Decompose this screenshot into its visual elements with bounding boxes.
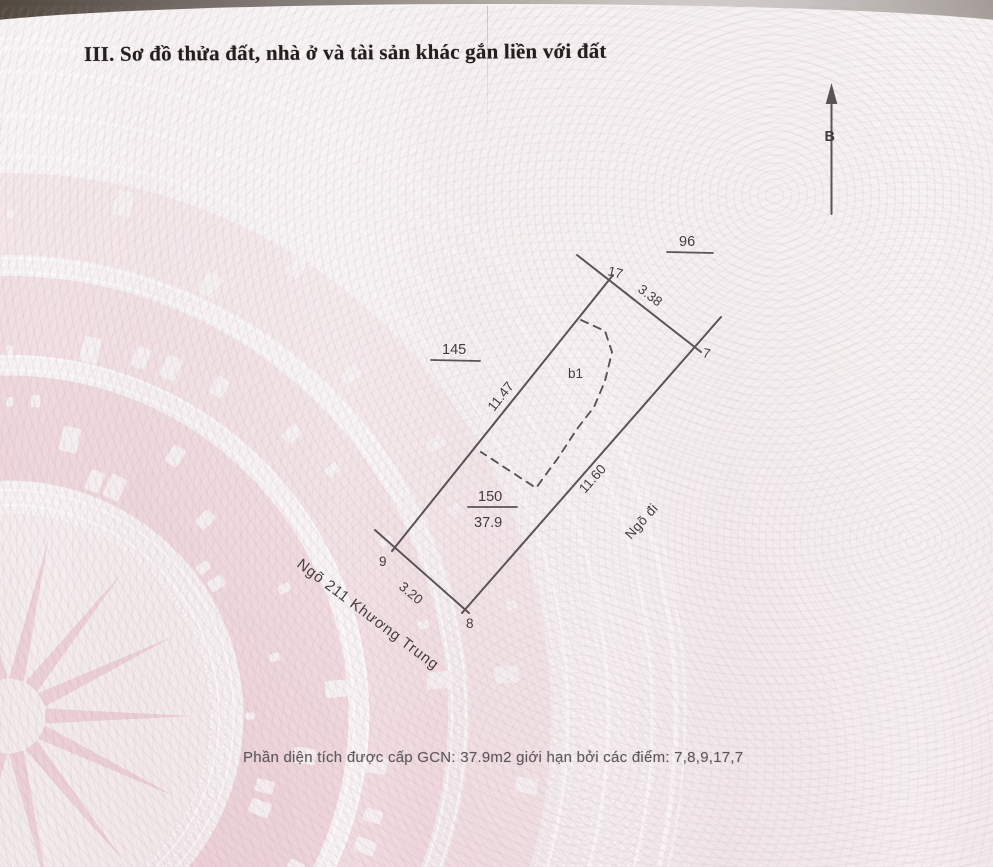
point-8: 8: [466, 616, 474, 631]
parcel-number: 150: [478, 489, 502, 505]
adjacent-parcel-north: 96: [679, 234, 695, 250]
north-letter: B: [825, 129, 835, 145]
point-9: 9: [379, 554, 387, 569]
edge-9-17: [392, 275, 613, 551]
edge-length-bottom: 3.20: [396, 579, 426, 607]
edge-8-9: [375, 530, 469, 613]
adjacent-parcel-west: 145: [442, 342, 466, 358]
parcel-area: 37.9: [474, 515, 502, 531]
underline-145: [431, 360, 480, 361]
edge-17-7: [577, 255, 701, 352]
granted-area-note: Phần diện tích được cấp GCN: 37.9m2 giới…: [243, 749, 803, 766]
scanned-certificate-page: III. Sơ đồ thửa đất, nhà ở và tài sản kh…: [0, 0, 993, 867]
plot-diagram: B 96 145 150 37.9 17 7 8 9 3.38 11.47 11…: [0, 0, 993, 867]
building-label: b1: [568, 366, 583, 381]
underline-96: [667, 252, 713, 253]
north-arrow: [826, 83, 838, 214]
edge-7-8: [462, 317, 721, 613]
road-label-south: Ngõ 211 Khương Trung: [294, 556, 443, 674]
point-7: 7: [701, 345, 711, 361]
edge-length-left: 11.47: [485, 379, 517, 414]
road-label-east: Ngõ đi: [622, 501, 661, 542]
edge-length-right: 11.60: [576, 461, 609, 495]
